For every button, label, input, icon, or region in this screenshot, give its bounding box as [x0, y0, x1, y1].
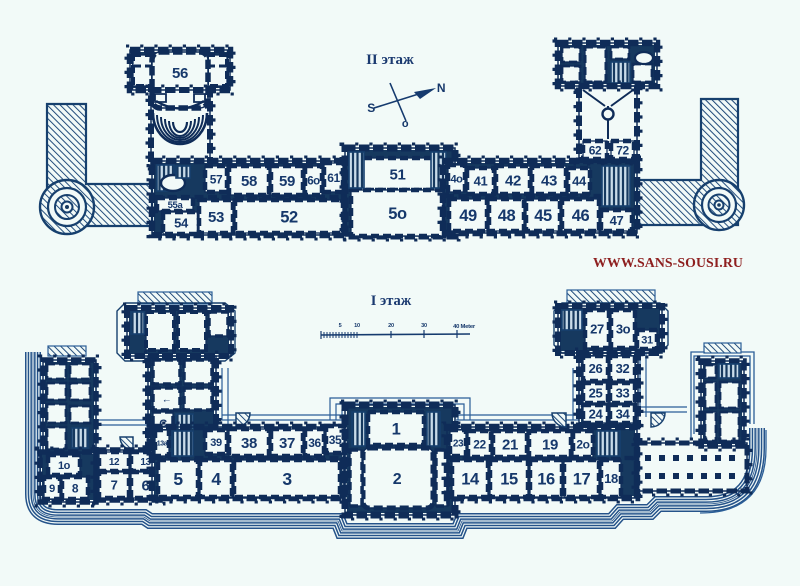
svg-text:30: 30 [421, 323, 427, 329]
svg-text:N: N [437, 81, 445, 95]
svg-text:49: 49 [459, 207, 477, 225]
svg-text:47: 47 [610, 213, 624, 228]
svg-text:41: 41 [474, 174, 488, 189]
svg-text:39: 39 [210, 437, 222, 449]
svg-text:9: 9 [49, 483, 55, 495]
svg-text:32: 32 [616, 361, 630, 376]
svg-text:43: 43 [541, 172, 557, 189]
svg-text:46: 46 [572, 207, 590, 225]
svg-text:12: 12 [109, 457, 120, 468]
svg-text:←: ← [162, 395, 172, 406]
svg-text:17: 17 [573, 470, 591, 488]
svg-text:26: 26 [589, 361, 603, 376]
svg-text:58: 58 [241, 173, 257, 190]
svg-text:57: 57 [210, 172, 223, 186]
svg-text:72: 72 [616, 143, 629, 157]
svg-text:2: 2 [393, 471, 402, 488]
svg-text:8: 8 [72, 481, 79, 495]
svg-text:59: 59 [279, 173, 295, 190]
svg-text:WWW.SANS-SOUSI.RU: WWW.SANS-SOUSI.RU [593, 255, 743, 270]
svg-text:1: 1 [392, 420, 401, 438]
svg-text:10: 10 [354, 323, 360, 329]
svg-text:51: 51 [390, 166, 406, 183]
svg-text:33: 33 [616, 386, 630, 401]
svg-text:4o: 4o [450, 173, 463, 185]
svg-text:6o: 6o [307, 176, 320, 188]
svg-text:5o: 5o [388, 205, 407, 223]
svg-text:5: 5 [173, 469, 183, 489]
svg-text:19: 19 [542, 436, 558, 453]
svg-text:20: 20 [388, 323, 394, 329]
svg-text:S: S [367, 101, 375, 115]
svg-text:18: 18 [604, 471, 618, 486]
svg-text:5: 5 [339, 323, 342, 329]
svg-text:34: 34 [616, 407, 631, 422]
svg-text:o: o [402, 118, 409, 130]
svg-text:48: 48 [498, 207, 516, 225]
svg-text:2o: 2o [576, 437, 589, 451]
svg-text:16: 16 [537, 470, 555, 488]
svg-text:54: 54 [174, 216, 189, 231]
svg-text:25: 25 [589, 386, 603, 401]
svg-text:6: 6 [142, 477, 150, 494]
svg-text:II этаж: II этаж [366, 52, 414, 68]
svg-text:55a: 55a [168, 200, 184, 211]
svg-text:44: 44 [572, 174, 587, 189]
svg-text:40 Meter: 40 Meter [453, 324, 476, 330]
svg-text:22: 22 [473, 437, 486, 451]
svg-text:7: 7 [111, 478, 118, 493]
svg-text:1o: 1o [58, 460, 71, 472]
svg-text:42: 42 [505, 172, 521, 189]
svg-text:I этаж: I этаж [371, 293, 412, 309]
svg-text:3: 3 [282, 469, 292, 489]
svg-text:15: 15 [500, 470, 518, 488]
svg-text:3o: 3o [616, 322, 631, 337]
svg-text:56: 56 [172, 65, 188, 82]
svg-text:36: 36 [308, 436, 321, 450]
svg-text:14: 14 [461, 470, 480, 488]
svg-text:52: 52 [280, 208, 298, 226]
svg-text:45: 45 [534, 207, 552, 225]
svg-text:4: 4 [211, 469, 221, 489]
svg-text:53: 53 [208, 209, 224, 226]
svg-text:38: 38 [241, 435, 257, 452]
svg-text:23: 23 [453, 439, 464, 450]
svg-text:13a: 13a [157, 441, 168, 448]
svg-text:31: 31 [641, 334, 653, 346]
svg-text:27: 27 [590, 322, 604, 337]
svg-text:21: 21 [502, 436, 518, 453]
svg-text:62: 62 [589, 143, 602, 157]
svg-text:37: 37 [279, 435, 295, 452]
svg-text:61: 61 [327, 171, 340, 185]
svg-text:24: 24 [589, 407, 604, 422]
